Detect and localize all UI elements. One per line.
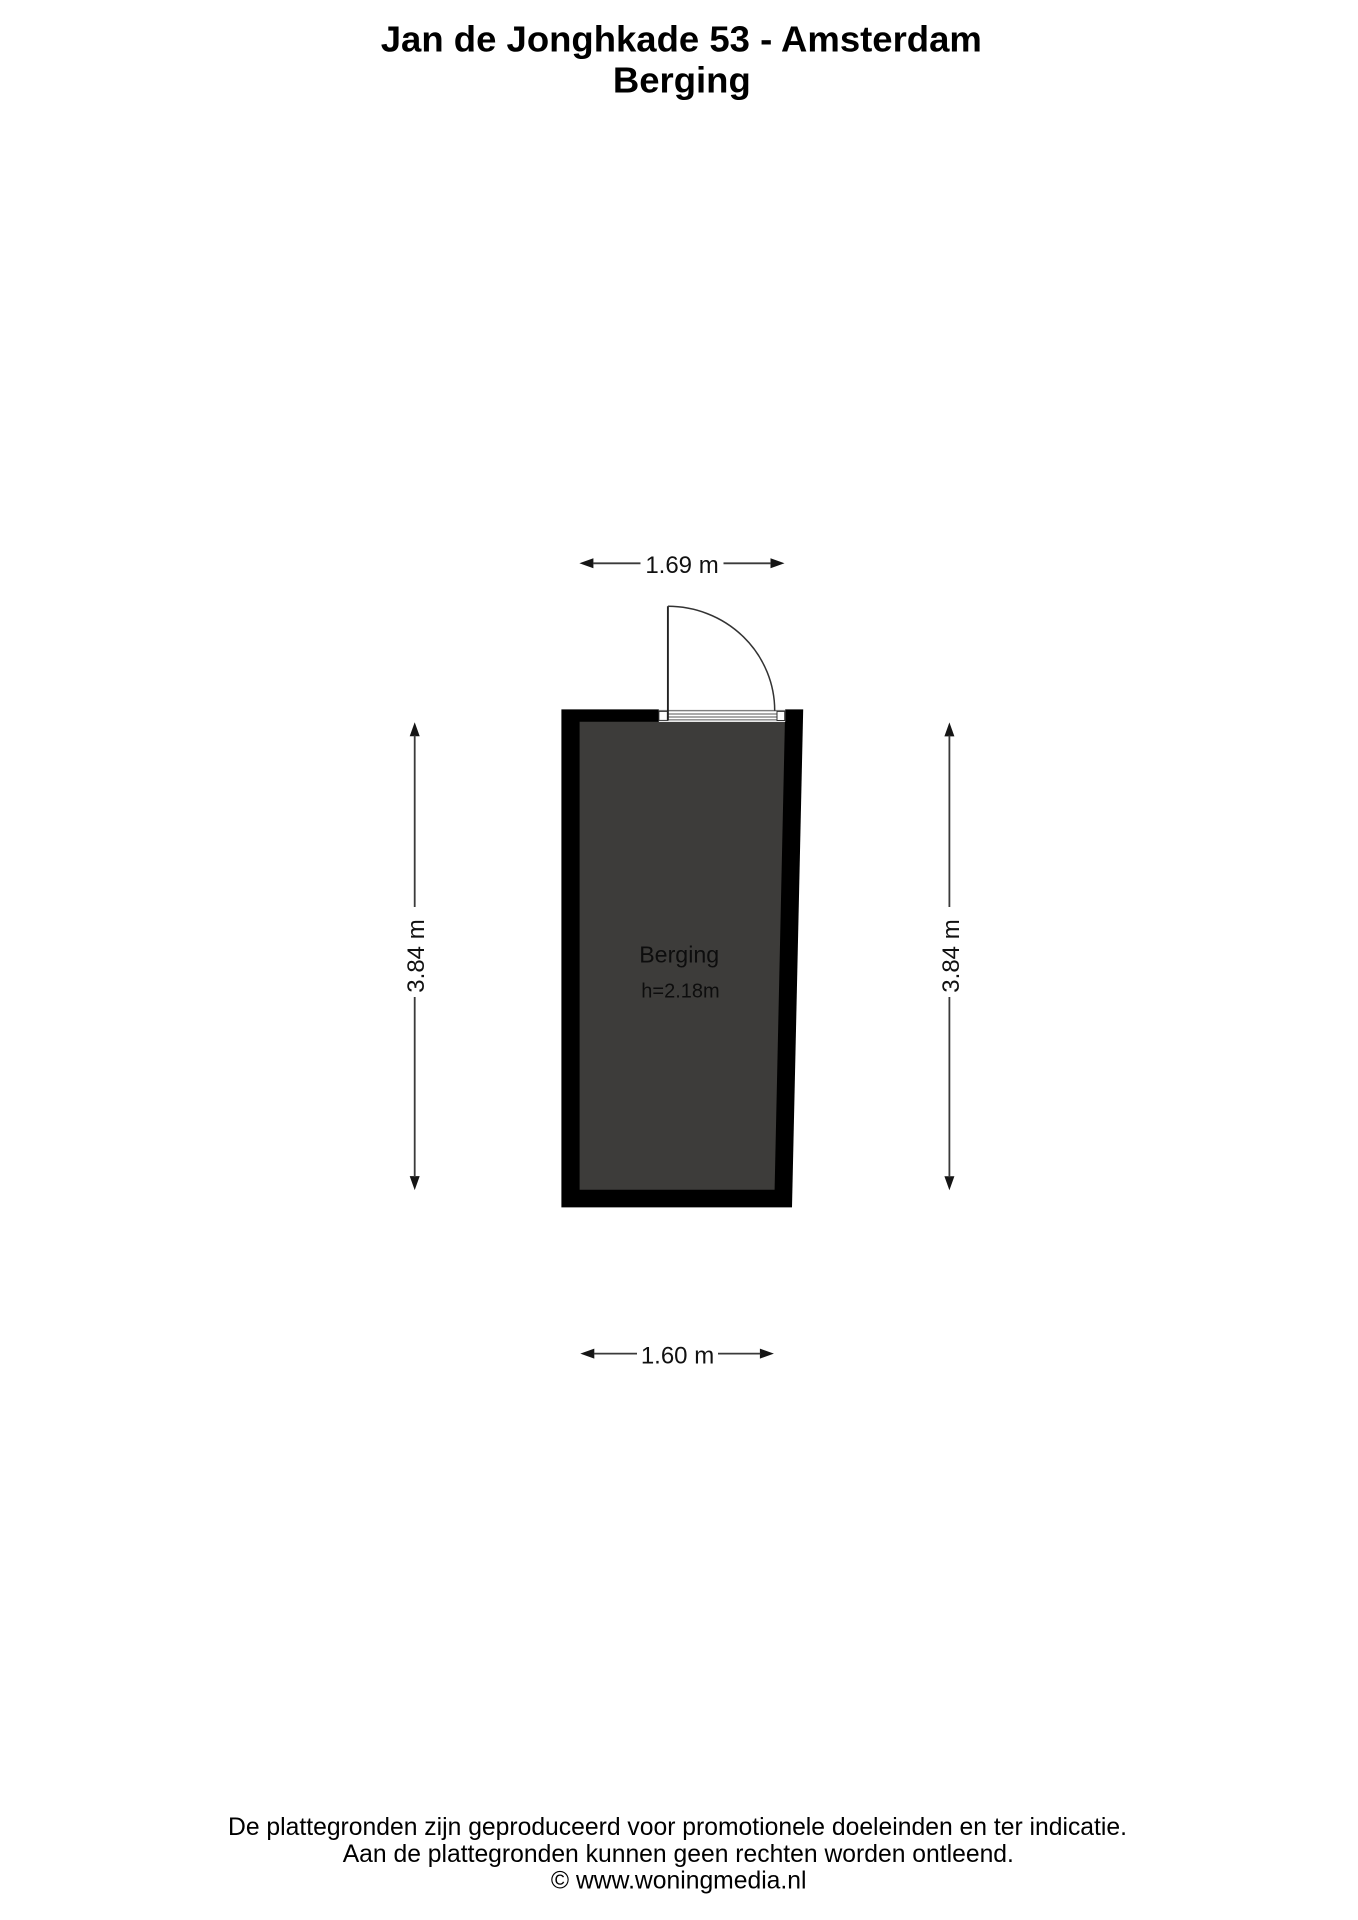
svg-text:1.60 m: 1.60 m [641,1342,714,1369]
svg-text:Berging: Berging [613,60,751,101]
svg-text:3.84 m: 3.84 m [938,919,965,992]
svg-text:3.84 m: 3.84 m [403,919,430,992]
svg-text:© www.woningmedia.nl: © www.woningmedia.nl [551,1868,807,1895]
svg-text:Jan de Jonghkade 53 - Amsterda: Jan de Jonghkade 53 - Amsterdam [381,19,982,60]
svg-text:h=2.18m: h=2.18m [641,981,719,1003]
svg-text:De plattegronden zijn geproduc: De plattegronden zijn geproduceerd voor … [228,1814,1127,1841]
svg-text:1.69 m: 1.69 m [645,552,718,579]
svg-text:Berging: Berging [639,941,719,967]
svg-text:Aan de plattegronden kunnen ge: Aan de plattegronden kunnen geen rechten… [343,1841,1014,1868]
